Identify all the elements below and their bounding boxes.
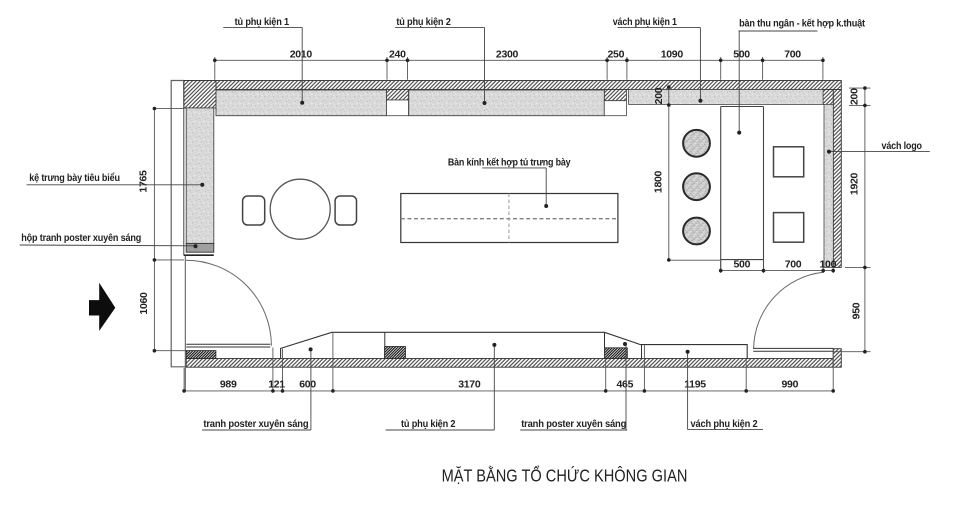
- svg-text:700: 700: [785, 259, 802, 271]
- svg-text:1060: 1060: [138, 292, 150, 315]
- svg-text:100: 100: [819, 259, 836, 271]
- svg-text:240: 240: [389, 48, 406, 60]
- svg-text:2010: 2010: [290, 48, 313, 60]
- svg-text:1920: 1920: [848, 172, 860, 195]
- svg-text:vách logo: vách logo: [882, 141, 922, 152]
- svg-text:tủ phụ kiện 1: tủ phụ kiện 1: [235, 17, 290, 28]
- svg-text:tranh poster xuyên sáng: tranh poster xuyên sáng: [521, 419, 626, 430]
- svg-text:2300: 2300: [496, 48, 519, 60]
- svg-text:tủ phụ kiện 2: tủ phụ kiện 2: [396, 17, 451, 28]
- svg-text:121: 121: [268, 379, 285, 391]
- svg-text:1765: 1765: [138, 170, 150, 193]
- svg-text:990: 990: [781, 379, 798, 391]
- svg-text:tủ phụ kiện 2: tủ phụ kiện 2: [401, 419, 456, 430]
- svg-text:MẶT BẰNG TỔ CHỨC KHÔNG GIAN: MẶT BẰNG TỔ CHỨC KHÔNG GIAN: [442, 465, 688, 486]
- svg-text:hộp tranh poster xuyên sáng: hộp tranh poster xuyên sáng: [21, 233, 141, 244]
- svg-text:bàn thu ngân - kết hợp k.thuật: bàn thu ngân - kết hợp k.thuật: [739, 17, 865, 29]
- svg-text:tranh poster xuyên sáng: tranh poster xuyên sáng: [203, 419, 308, 430]
- svg-text:500: 500: [733, 48, 750, 60]
- svg-text:kệ trưng bày tiêu biểu: kệ trưng bày tiêu biểu: [29, 172, 120, 184]
- svg-text:1800: 1800: [652, 170, 664, 193]
- svg-text:500: 500: [733, 259, 750, 271]
- svg-text:950: 950: [850, 302, 862, 319]
- svg-text:Bàn kính kết hợp tủ trưng bày: Bàn kính kết hợp tủ trưng bày: [448, 156, 571, 168]
- svg-text:vách phụ kiện 2: vách phụ kiện 2: [691, 419, 759, 430]
- svg-text:1090: 1090: [661, 48, 684, 60]
- svg-text:465: 465: [616, 379, 633, 391]
- svg-text:200: 200: [848, 88, 860, 105]
- svg-text:vách phụ kiện 1: vách phụ kiện 1: [613, 17, 678, 28]
- svg-text:989: 989: [220, 379, 237, 391]
- svg-text:250: 250: [607, 48, 624, 60]
- svg-text:700: 700: [784, 48, 801, 60]
- svg-text:600: 600: [299, 379, 316, 391]
- svg-text:200: 200: [653, 87, 665, 104]
- svg-text:3170: 3170: [458, 379, 481, 391]
